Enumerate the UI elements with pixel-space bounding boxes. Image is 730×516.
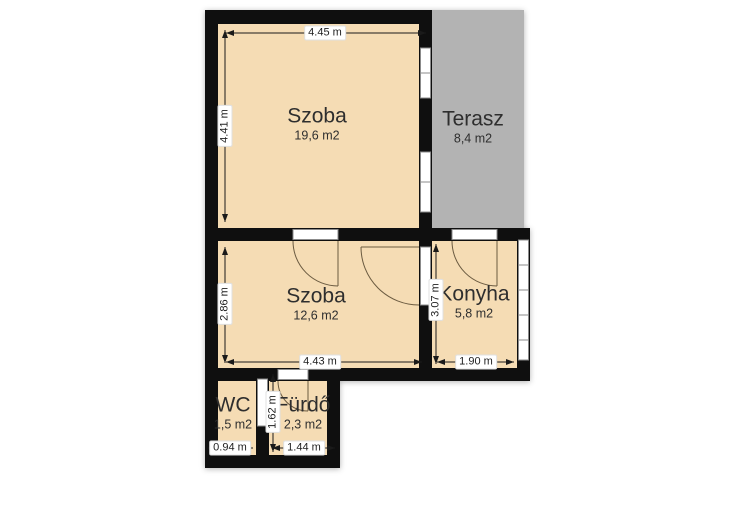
door-frame-terasz-konyha — [452, 230, 497, 240]
wall-top — [205, 10, 432, 24]
room-area-furdo: 2,3 m2 — [276, 418, 331, 431]
dim-label-szoba1-width: 4.45 m — [304, 26, 346, 41]
room-name-terasz: Terasz — [442, 108, 504, 130]
room-name-konyha: Konyha — [438, 283, 509, 305]
dim-label-szoba2-width: 4.43 m — [299, 355, 341, 370]
room-name-wc: WC — [214, 394, 252, 416]
door-frame-szoba1-szoba2 — [293, 230, 338, 240]
room-label-furdo: Fürdő 2,3 m2 — [276, 394, 331, 431]
room-name-szoba-1: Szoba — [287, 105, 347, 127]
dim-label-furdo-depth: 1.62 m — [266, 391, 281, 433]
room-label-terasz: Terasz 8,4 m2 — [442, 108, 504, 145]
floor-plan-canvas — [0, 0, 730, 516]
wall-bottom-middle — [205, 368, 530, 381]
dim-label-wc-width: 0.94 m — [209, 441, 251, 456]
door-frame-szoba2-furdo — [278, 370, 308, 380]
building — [205, 10, 530, 468]
dim-label-konyha-width: 1.90 m — [455, 355, 497, 370]
window-szoba1-terasz-2 — [421, 152, 431, 212]
room-label-wc: WC 1,5 m2 — [214, 394, 252, 431]
room-area-konyha: 5,8 m2 — [438, 307, 509, 320]
dim-label-szoba2-depth: 2.86 m — [218, 283, 233, 325]
room-label-konyha: Konyha 5,8 m2 — [438, 283, 509, 320]
room-area-wc: 1,5 m2 — [214, 418, 252, 431]
dim-label-konyha-depth: 3.07 m — [429, 279, 444, 321]
wall-wc-bottom — [205, 455, 340, 468]
dim-label-szoba1-depth: 4.41 m — [218, 105, 233, 147]
floor-plan: Szoba 19,6 m2 Terasz 8,4 m2 Szoba 12,6 m… — [0, 0, 730, 516]
room-area-szoba-2: 12,6 m2 — [286, 309, 346, 322]
room-area-terasz: 8,4 m2 — [442, 132, 504, 145]
room-label-szoba-1: Szoba 19,6 m2 — [287, 105, 347, 142]
room-area-szoba-1: 19,6 m2 — [287, 129, 347, 142]
window-konyha-right — [519, 240, 529, 360]
room-name-szoba-2: Szoba — [286, 285, 346, 307]
dim-label-furdo-width: 1.44 m — [283, 441, 325, 456]
window-szoba1-terasz-1 — [421, 48, 431, 98]
room-name-furdo: Fürdő — [276, 394, 331, 416]
room-label-szoba-2: Szoba 12,6 m2 — [286, 285, 346, 322]
